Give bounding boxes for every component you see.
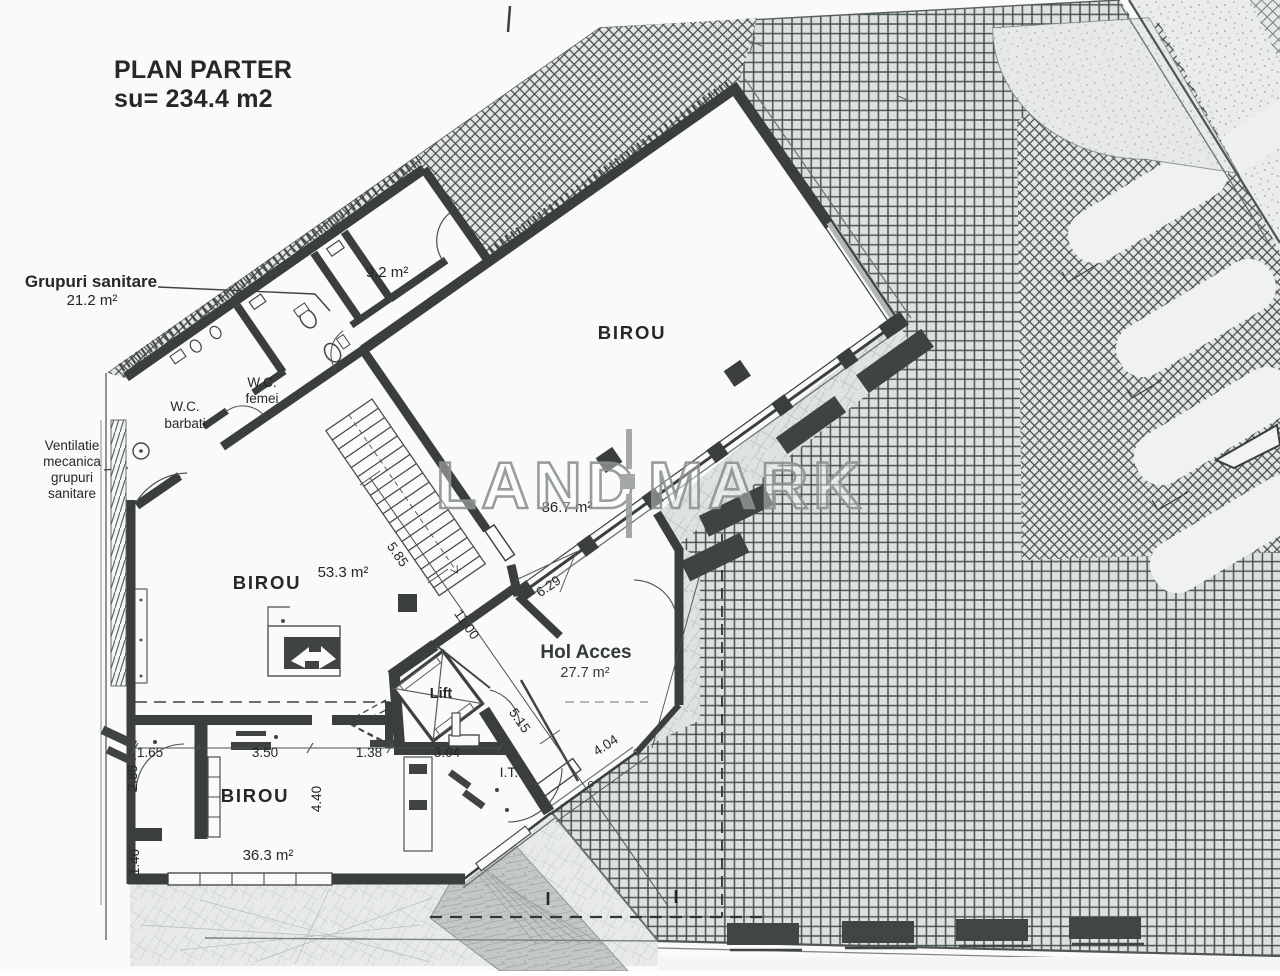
svg-text:1.40: 1.40 [127, 849, 142, 875]
svg-text:3.50: 3.50 [252, 745, 278, 760]
svg-text:53.3 m²: 53.3 m² [318, 564, 369, 581]
svg-text:BIROU: BIROU [598, 322, 667, 343]
svg-text:sanitare: sanitare [48, 486, 96, 501]
svg-text:PLAN PARTER: PLAN PARTER [114, 56, 292, 84]
svg-text:grupuri: grupuri [51, 470, 93, 485]
svg-text:4.40: 4.40 [309, 786, 324, 812]
svg-text:I.T.: I.T. [500, 764, 519, 780]
svg-text:I: I [673, 887, 678, 907]
svg-text:Lift: Lift [430, 686, 453, 702]
svg-text:femei: femei [245, 391, 278, 406]
svg-text:I: I [545, 889, 550, 909]
svg-text:mecanica: mecanica [43, 454, 101, 469]
svg-text:1.38: 1.38 [356, 745, 382, 760]
svg-text:3.04: 3.04 [434, 745, 461, 760]
svg-text:9.2 m²: 9.2 m² [366, 264, 409, 281]
svg-text:21.2 m²: 21.2 m² [67, 292, 118, 309]
svg-text:36.3 m²: 36.3 m² [243, 847, 294, 864]
svg-text:Grupuri sanitare: Grupuri sanitare [25, 272, 157, 291]
svg-text:LAND: LAND [436, 448, 639, 522]
svg-text:barbati: barbati [164, 416, 205, 431]
svg-text:su= 234.4 m2: su= 234.4 m2 [114, 85, 273, 113]
svg-text:Hol Acces: Hol Acces [540, 642, 631, 663]
svg-text:W.C.: W.C. [247, 375, 276, 390]
svg-text:MARK: MARK [648, 448, 866, 522]
svg-text:27.7 m²: 27.7 m² [560, 665, 609, 681]
svg-text:W.C.: W.C. [170, 399, 199, 414]
svg-text:2.85: 2.85 [125, 765, 140, 791]
svg-text:BIROU: BIROU [233, 572, 302, 593]
svg-text:BIROU: BIROU [221, 785, 290, 806]
svg-text:1.65: 1.65 [137, 745, 163, 760]
svg-text:Ventilatie: Ventilatie [45, 438, 100, 453]
